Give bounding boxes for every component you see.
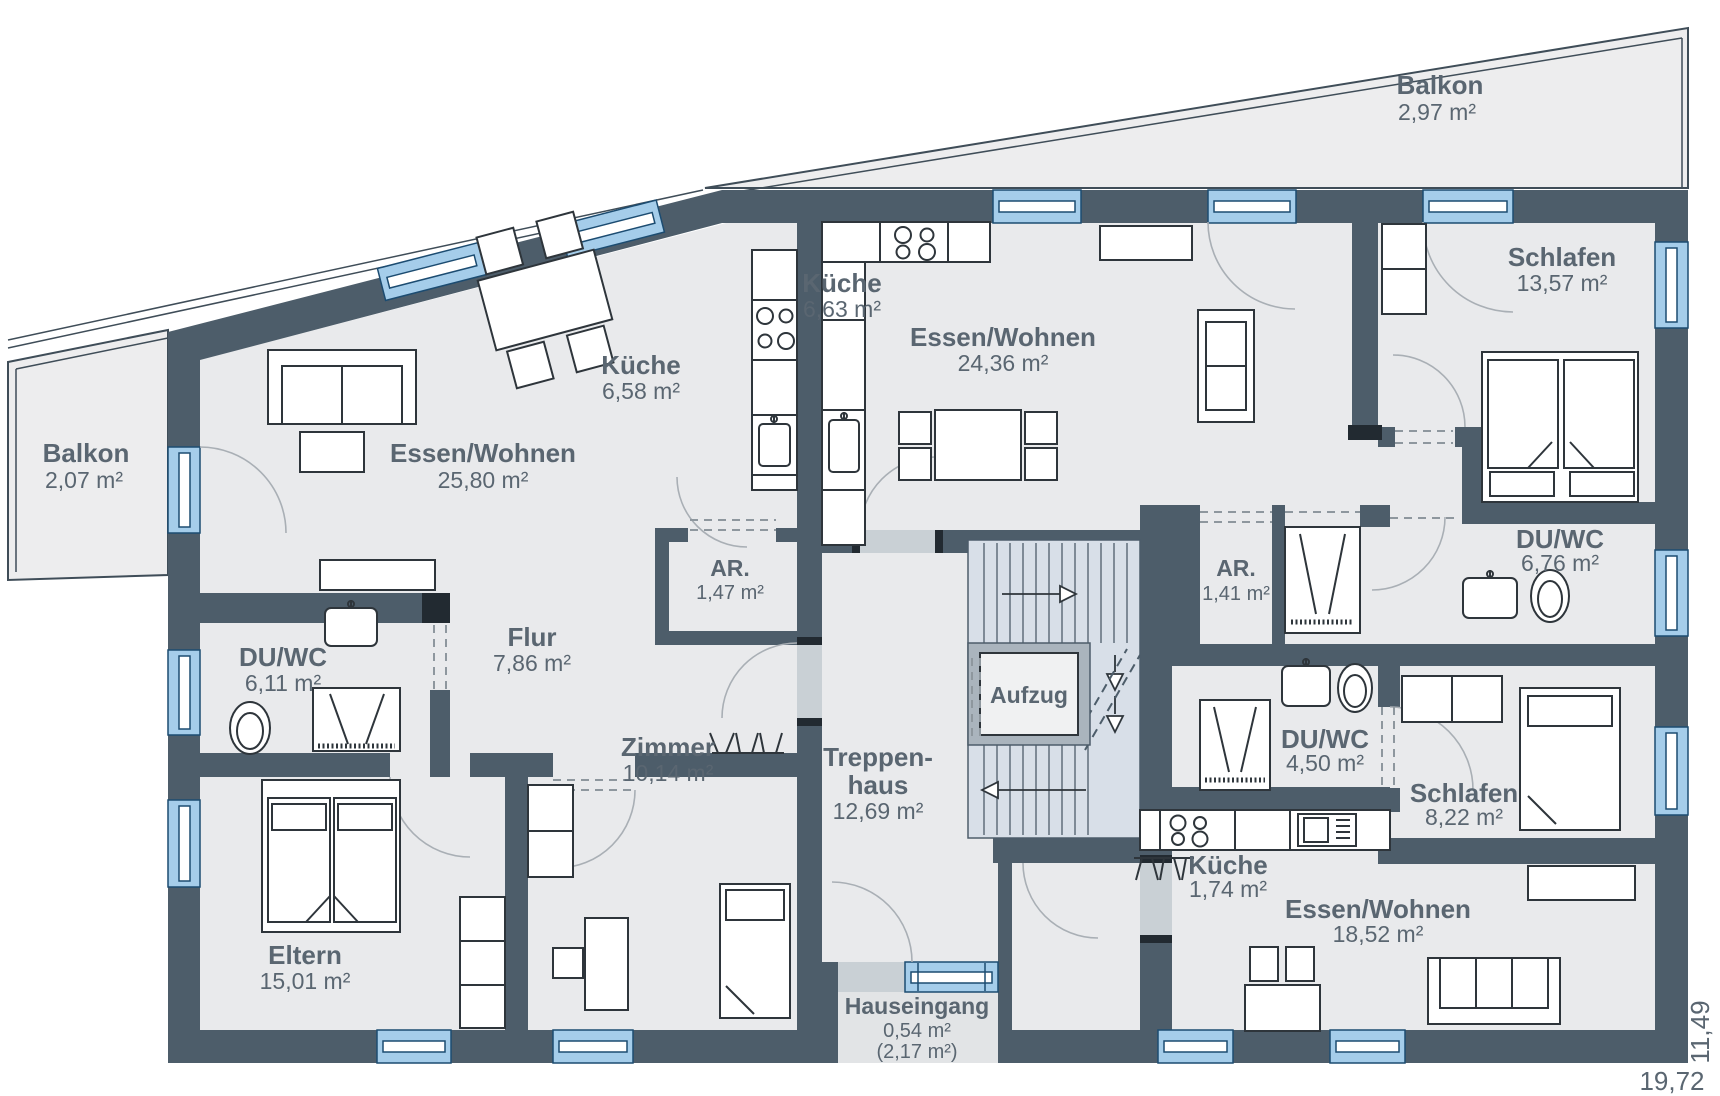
room-label: Küche	[601, 350, 680, 380]
room-label: DU/WC	[239, 642, 327, 672]
room-label: Hauseingang	[845, 993, 989, 1019]
toilet-icon	[1338, 664, 1372, 712]
double-bed-eltern	[262, 780, 400, 932]
window-icon	[1330, 1030, 1405, 1063]
staircase: Aufzug	[968, 540, 1140, 838]
room-area: (2,17 m²)	[876, 1041, 957, 1063]
sideboard-left	[320, 560, 435, 590]
room-area: 1,47 m²	[696, 582, 764, 604]
room-area: 10,14 m²	[623, 760, 714, 786]
room-area: 4,50 m²	[1286, 750, 1364, 776]
toilet-icon	[230, 702, 270, 754]
room-label: haus	[848, 770, 909, 800]
room-area: 6,58 m²	[602, 378, 680, 404]
room-area: 1,74 m²	[1189, 876, 1267, 902]
window-icon	[377, 1030, 451, 1063]
dining-set-mid	[899, 410, 1057, 480]
room-label: AR.	[710, 555, 750, 581]
room-label: Eltern	[268, 940, 342, 970]
sofa-br	[1428, 958, 1560, 1024]
window-icon	[168, 800, 200, 887]
shower-icon	[1285, 527, 1360, 633]
room-area: 18,52 m²	[1333, 921, 1424, 947]
room-label: Treppen-	[823, 742, 933, 772]
room-label: Balkon	[1397, 70, 1484, 100]
kitchen-counter-left	[752, 250, 797, 490]
sofa-left	[268, 350, 416, 424]
shower-icon	[313, 688, 400, 751]
room-label: Essen/Wohnen	[910, 322, 1096, 352]
sofa-mid	[1198, 310, 1254, 422]
kitchen-counter-br	[1140, 810, 1390, 850]
room-label: Schlafen	[1508, 242, 1616, 272]
sideboard-br	[1528, 866, 1635, 900]
floorplan-svg: Aufzug	[0, 0, 1720, 1096]
room-label: Essen/Wohnen	[390, 438, 576, 468]
sink-icon	[1282, 658, 1330, 706]
window-icon	[993, 190, 1081, 223]
room-area: 6,76 m²	[1521, 550, 1599, 576]
sink-icon	[829, 412, 859, 472]
room-label: AR.	[1216, 555, 1256, 581]
room-area: 15,01 m²	[260, 968, 351, 994]
elevator: Aufzug	[968, 643, 1090, 745]
room-area: 8,22 m²	[1425, 804, 1503, 830]
room-area: 0,54 m²	[883, 1020, 951, 1042]
shower-icon	[1200, 700, 1270, 790]
kitchen-sink-icon	[1298, 814, 1356, 846]
balcony-right	[705, 28, 1688, 196]
floorplan-canvas: Aufzug	[0, 0, 1720, 1096]
entrance-window-icon	[905, 962, 998, 992]
balcony-door-icon	[168, 447, 200, 533]
room-area: 24,36 m²	[958, 350, 1049, 376]
window-icon	[1655, 242, 1688, 328]
room-label: Küche	[802, 268, 881, 298]
sideboard-mid	[1100, 226, 1192, 260]
room-area: 2,97 m²	[1398, 99, 1476, 125]
dimension-bottom: 19,72	[1639, 1066, 1704, 1096]
room-area: 1,41 m²	[1202, 583, 1270, 605]
elevator-label: Aufzug	[990, 682, 1068, 708]
coffee-table-left	[300, 432, 364, 472]
window-icon	[168, 650, 200, 735]
room-label: Essen/Wohnen	[1285, 894, 1471, 924]
room-area: 12,69 m²	[833, 798, 924, 824]
dimension-right: 11,49	[1685, 1000, 1715, 1063]
room-area: 13,57 m²	[1517, 270, 1608, 296]
wardrobe-schlafen-br	[1402, 676, 1502, 722]
room-area: 25,80 m²	[438, 467, 529, 493]
wardrobe-schlafen-tr	[1382, 224, 1426, 314]
balcony-door-icon	[1423, 190, 1513, 223]
sink-icon	[759, 416, 790, 466]
window-icon	[1655, 550, 1688, 636]
room-label: Balkon	[43, 438, 130, 468]
window-icon	[1158, 1030, 1233, 1063]
room-area: 7,86 m²	[493, 650, 571, 676]
room-label: Zimmer	[621, 732, 715, 762]
room-label: Flur	[507, 622, 556, 652]
window-icon	[553, 1030, 633, 1063]
window-icon	[1655, 727, 1688, 815]
double-bed-schlafen-tr	[1482, 352, 1638, 502]
toilet-icon	[1531, 570, 1569, 622]
single-bed-schlafen-br	[1520, 688, 1620, 830]
room-area: 6,63 m²	[803, 296, 881, 322]
room-area: 2,07 m²	[45, 467, 123, 493]
sink-icon	[1463, 570, 1517, 618]
balcony-door-icon	[1208, 190, 1296, 223]
room-area: 6,11 m²	[245, 670, 322, 696]
